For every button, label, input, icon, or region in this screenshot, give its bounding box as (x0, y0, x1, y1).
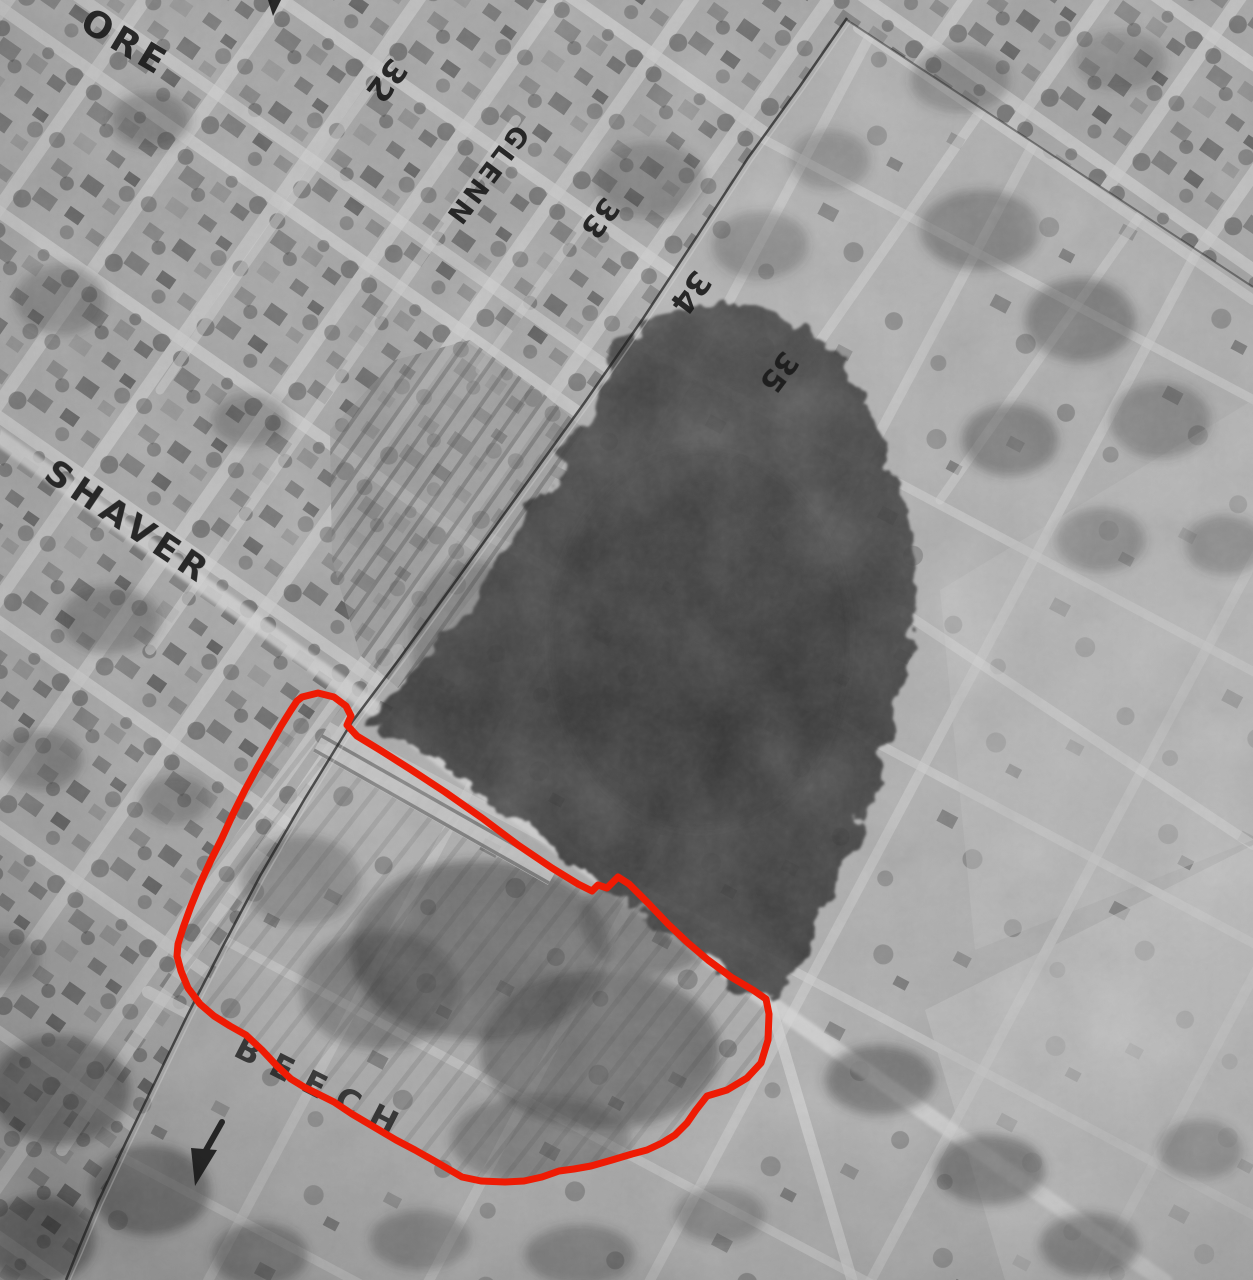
film-texture (0, 0, 1253, 1280)
aerial-photo-canvas: ORE 32 GLENN 33 34 35 SHAVER BEECH (0, 0, 1253, 1280)
aerial-photo: ORE 32 GLENN 33 34 35 SHAVER BEECH (0, 0, 1253, 1280)
